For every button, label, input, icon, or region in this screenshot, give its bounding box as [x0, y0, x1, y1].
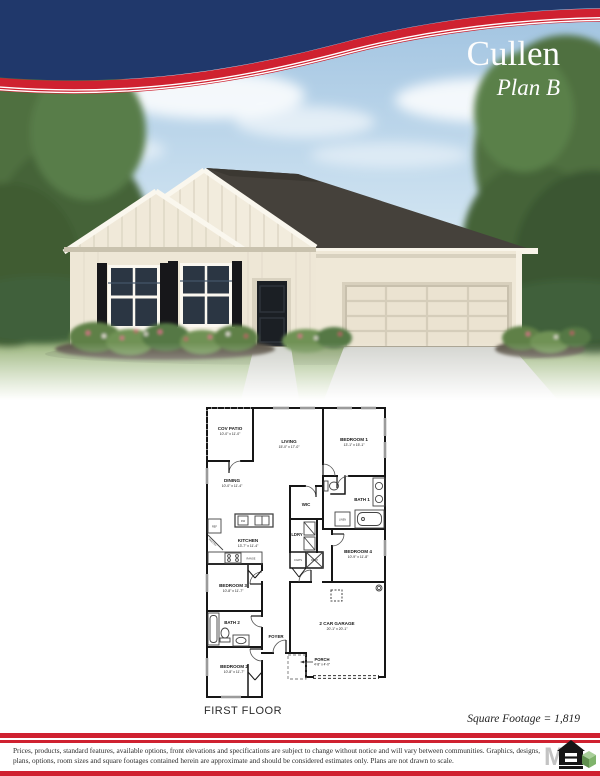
svg-text:10'-8" x 11'-7": 10'-8" x 11'-7": [223, 589, 244, 593]
room-label-garage: 2 CAR GARAGE: [319, 621, 354, 626]
water-heater: [376, 585, 382, 591]
room-label-dining: DINING: [224, 478, 241, 483]
svg-text:10'-0" x 11'-4": 10'-0" x 11'-4": [222, 484, 243, 488]
title-block: Cullen Plan B: [467, 36, 560, 101]
floor-plan-drawing: COV PATIO 10'-0" x 11'-0" LIVING 15'-0" …: [185, 402, 400, 704]
footer-bottom-bar: [0, 771, 600, 776]
label-linen: LINEN: [339, 519, 346, 522]
disclaimer-line-1: Prices, products, standard features, ava…: [13, 746, 541, 756]
room-label-bath2: BATH 2: [224, 620, 240, 625]
first-floor-label: FIRST FLOOR: [204, 705, 282, 717]
disclaimer-line-2: plans, options, room sizes and square fo…: [13, 756, 541, 766]
svg-text:10'-0" x 11'-0": 10'-0" x 11'-0": [220, 432, 241, 436]
room-label-bedroom3: BEDROOM 3: [219, 583, 247, 588]
floor-plan: COV PATIO 10'-0" x 11'-0" LIVING 15'-0" …: [185, 402, 400, 704]
room-label-ldry: LDRY: [291, 532, 302, 537]
front-door: [257, 281, 287, 347]
plan-variant: Plan B: [467, 75, 560, 101]
svg-text:10'-8" x 11'-7": 10'-8" x 11'-7": [224, 670, 245, 674]
room-label-bath1: BATH 1: [354, 497, 370, 502]
builder-cube-icon: [582, 751, 596, 768]
room-label-porch: PORCH: [314, 657, 329, 662]
fixtures: [208, 478, 385, 679]
garage-door: [346, 286, 508, 347]
disclaimer-text: Prices, products, standard features, ava…: [13, 746, 541, 766]
square-footage-label: Square Footage = 1,819: [467, 713, 580, 725]
flyer-page: Cullen Plan B: [0, 0, 600, 776]
plan-name: Cullen: [467, 36, 560, 72]
label-dw: DW: [241, 520, 246, 523]
label-range: RANGE: [247, 558, 256, 561]
room-label-cov-patio: COV PATIO: [218, 426, 243, 431]
fixture-labels: REF PANTRY RANGE DW LINEN COATS MECH: [208, 519, 347, 563]
room-labels: COV PATIO 10'-0" x 11'-0" LIVING 15'-0" …: [218, 426, 373, 674]
room-label-foyer: FOYER: [268, 634, 284, 639]
builder-logo: M: [544, 739, 598, 770]
room-label-bedroom2: BEDROOM 2: [220, 664, 248, 669]
room-label-bedroom1: BEDROOM 1: [340, 437, 368, 442]
room-label-wic: WIC: [302, 502, 311, 507]
room-label-kitchen: KITCHEN: [238, 538, 259, 543]
svg-text:10'-9" x 11'-8": 10'-9" x 11'-8": [348, 555, 369, 559]
garage-door-line: [313, 676, 379, 679]
attic-access: [331, 590, 342, 601]
footer-mid-bar: [0, 740, 600, 743]
label-ref: REF: [212, 526, 217, 529]
room-label-living: LIVING: [281, 439, 297, 444]
svg-text:20'-1" x 20'-1": 20'-1" x 20'-1": [327, 627, 349, 631]
svg-text:13'-1" x 15'-1": 13'-1" x 15'-1": [344, 443, 366, 447]
svg-text:4'-8" x 4'-0": 4'-8" x 4'-0": [314, 663, 330, 667]
label-pantry: PANTRY: [208, 538, 217, 547]
svg-text:13'-7" x 11'-4": 13'-7" x 11'-4": [238, 544, 259, 548]
footer-top-bar: [0, 733, 600, 738]
svg-text:15'-0" x 17'-0": 15'-0" x 17'-0": [279, 445, 301, 449]
label-mech: MECH: [311, 559, 318, 562]
room-label-bedroom4: BEDROOM 4: [344, 549, 372, 554]
label-coats: COATS: [294, 559, 302, 562]
